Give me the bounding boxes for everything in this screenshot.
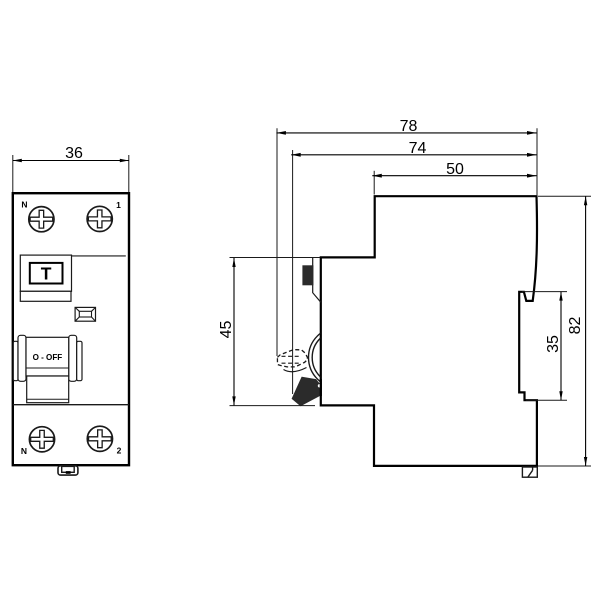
svg-text:78: 78 — [400, 118, 418, 135]
svg-text:1: 1 — [116, 200, 121, 210]
svg-text:50: 50 — [446, 161, 464, 178]
svg-text:36: 36 — [65, 145, 83, 162]
svg-text:T: T — [41, 264, 52, 284]
svg-text:35: 35 — [545, 335, 562, 353]
svg-text:82: 82 — [567, 317, 584, 335]
svg-text:2: 2 — [117, 446, 122, 456]
svg-text:N: N — [21, 200, 27, 210]
svg-text:N: N — [21, 446, 27, 456]
svg-text:74: 74 — [409, 140, 427, 157]
svg-text:45: 45 — [218, 321, 235, 339]
svg-text:O - OFF: O - OFF — [33, 353, 63, 362]
